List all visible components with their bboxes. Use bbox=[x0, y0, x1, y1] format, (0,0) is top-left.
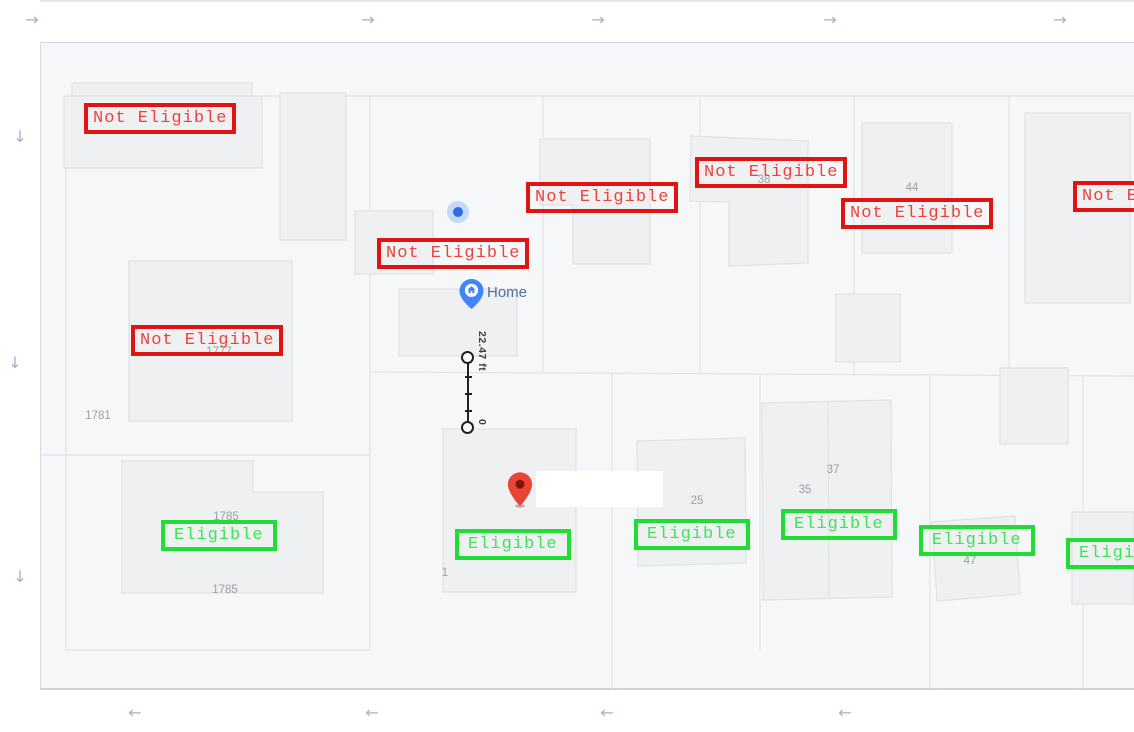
arrow-down-icon: ↓ bbox=[13, 569, 26, 585]
measurement-ruler: 22.47 ft 0 bbox=[452, 326, 500, 442]
arrow-right-icon: → bbox=[1053, 12, 1066, 28]
blue-location-dot bbox=[447, 201, 469, 223]
map-canvas[interactable] bbox=[40, 42, 1134, 690]
parcel-number: 1785 bbox=[212, 584, 238, 596]
arrow-right-icon: → bbox=[361, 12, 374, 28]
measurement-zero-label: 0 bbox=[476, 419, 488, 425]
measurement-tick bbox=[465, 410, 472, 412]
eligible-badge: Eligible bbox=[781, 509, 897, 540]
red-dropped-pin[interactable] bbox=[507, 471, 533, 514]
measurement-tick bbox=[465, 393, 472, 395]
parcel-number: 1781 bbox=[85, 410, 111, 422]
parcel-number: 44 bbox=[906, 182, 919, 194]
red-pin-icon[interactable] bbox=[507, 471, 533, 509]
not-eligible-badge: Not Eligible bbox=[84, 103, 236, 134]
arrow-right-icon: → bbox=[823, 12, 836, 28]
eligible-badge: Eligible bbox=[455, 529, 571, 560]
eligibility-map-page: Home 22.47 ft 0 178117771785178512535373… bbox=[0, 0, 1134, 732]
home-marker[interactable]: Home bbox=[459, 279, 527, 309]
not-eligible-badge: Not Eligible bbox=[841, 198, 993, 229]
parcel-number: 37 bbox=[827, 464, 840, 476]
parcel-number: 47 bbox=[964, 555, 977, 567]
eligible-badge: Eligible bbox=[919, 525, 1035, 556]
arrow-left-icon: ← bbox=[128, 705, 141, 721]
arrow-left-icon: ← bbox=[838, 705, 851, 721]
blue-location-dot-core bbox=[453, 207, 463, 217]
measurement-tick bbox=[465, 376, 472, 378]
eligible-badge: Eligible bbox=[634, 519, 750, 550]
measurement-endpoint-start[interactable] bbox=[461, 351, 474, 364]
eligible-badge: Eligible bbox=[1066, 538, 1134, 569]
not-eligible-badge: Not Eligible bbox=[526, 182, 678, 213]
parcel-number: 35 bbox=[799, 484, 812, 496]
home-marker-label: Home bbox=[487, 284, 527, 301]
arrow-left-icon: ← bbox=[365, 705, 378, 721]
not-eligible-badge: Not Eligible bbox=[377, 238, 529, 269]
eligible-badge: Eligible bbox=[161, 520, 277, 551]
not-eligible-badge: Not Eligible bbox=[1073, 181, 1134, 212]
white-cover-box bbox=[536, 471, 663, 507]
parcel-number: 1 bbox=[442, 567, 448, 579]
arrow-left-icon: ← bbox=[600, 705, 613, 721]
arrow-right-icon: → bbox=[591, 12, 604, 28]
not-eligible-badge: Not Eligible bbox=[131, 325, 283, 356]
arrow-right-icon: → bbox=[25, 12, 38, 28]
not-eligible-badge: Not Eligible bbox=[695, 157, 847, 188]
measurement-distance-label: 22.47 ft bbox=[476, 331, 488, 371]
parcel-number: 25 bbox=[691, 495, 704, 507]
home-pin-icon[interactable] bbox=[459, 279, 484, 309]
measurement-endpoint-end[interactable] bbox=[461, 421, 474, 434]
arrow-down-icon: ↓ bbox=[8, 355, 21, 371]
arrow-down-icon: ↓ bbox=[13, 129, 26, 145]
